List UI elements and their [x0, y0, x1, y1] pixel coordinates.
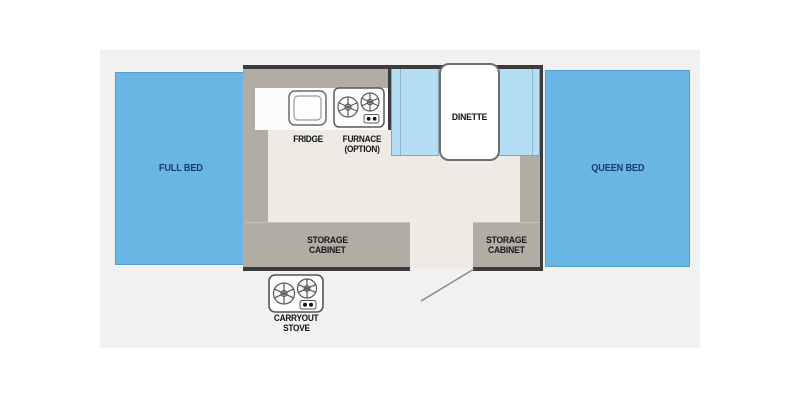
- queen-bed-area: QUEEN BED: [545, 70, 690, 267]
- storage-cabinet-left: STORAGE CABINET: [245, 222, 410, 268]
- dinette-bench-left: [391, 68, 439, 156]
- carryout-stove-label: CARRYOUT STOVE: [266, 314, 326, 333]
- queen-bed-label: QUEEN BED: [591, 163, 644, 174]
- carryout-stove-icon: [268, 274, 324, 313]
- dinette-bench-right: [497, 68, 540, 156]
- fridge-label: FRIDGE: [278, 135, 338, 145]
- galley-back-wall: [243, 68, 390, 88]
- furnace-label: FURNACE (OPTION): [332, 135, 392, 154]
- furnace-cooktop-icon: [333, 87, 385, 128]
- dinette-table: DINETTE: [439, 63, 500, 161]
- fridge-icon: [288, 90, 327, 126]
- storage-cabinet-right: STORAGE CABINET: [473, 222, 540, 268]
- floorplan-canvas: FULL BED QUEEN BED: [100, 50, 700, 348]
- bottom-wall-right: [473, 267, 543, 271]
- bottom-wall-left: [243, 267, 410, 271]
- door-swing-icon: [418, 266, 478, 304]
- full-bed-label: FULL BED: [159, 163, 203, 174]
- right-wall-line: [540, 66, 543, 270]
- full-bed-area: FULL BED: [115, 72, 247, 265]
- counter-end-wall: [388, 66, 391, 130]
- dinette-label: DINETTE: [452, 112, 487, 122]
